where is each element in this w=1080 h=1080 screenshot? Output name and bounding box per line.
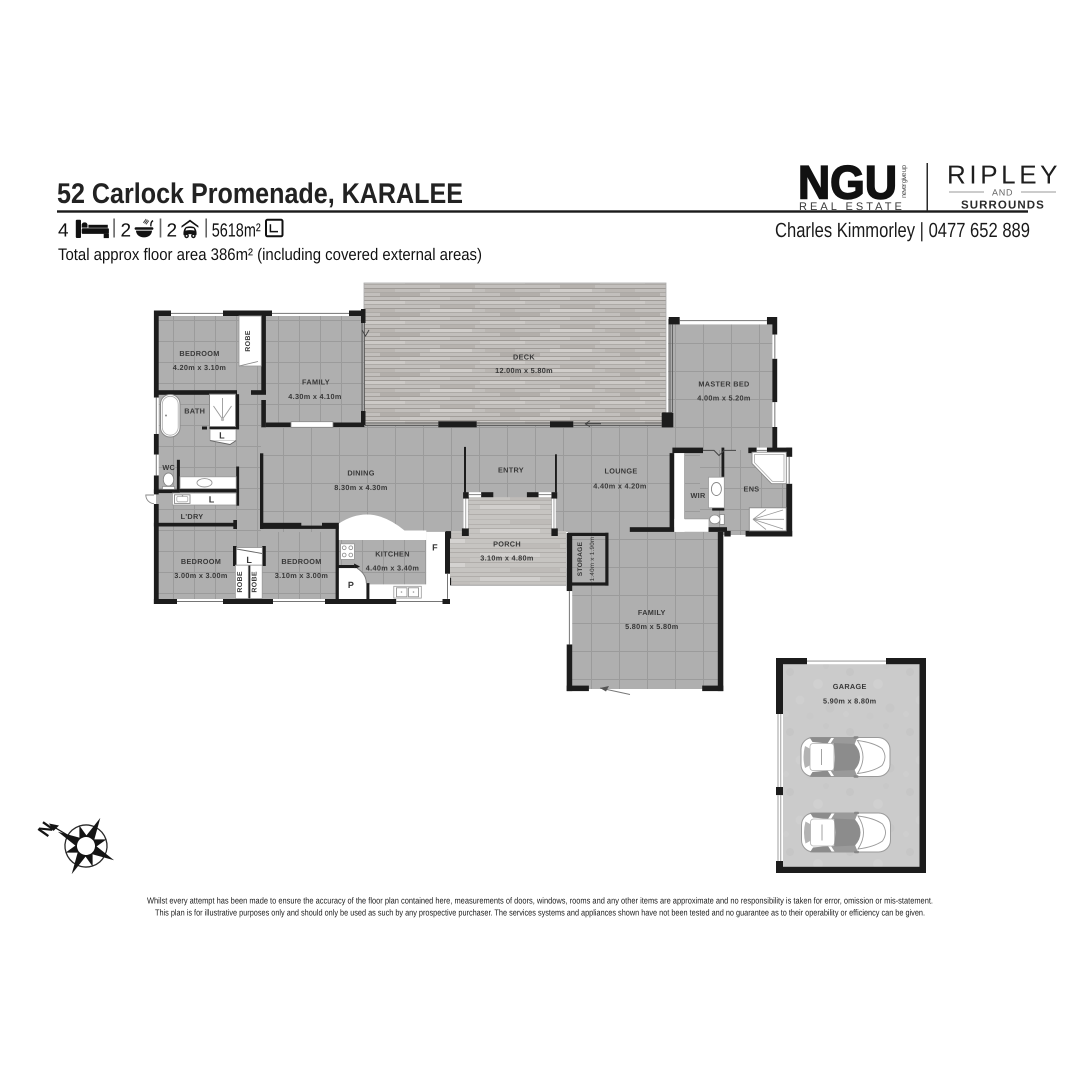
svg-text:L: L bbox=[209, 494, 215, 504]
svg-text:4.40m x 4.20m: 4.40m x 4.20m bbox=[593, 482, 647, 491]
svg-text:L: L bbox=[246, 555, 252, 565]
svg-text:never give up: never give up bbox=[900, 165, 908, 198]
svg-text:LOUNGE: LOUNGE bbox=[604, 467, 637, 476]
svg-text:ENS: ENS bbox=[744, 485, 760, 494]
svg-text:4.30m x 4.10m: 4.30m x 4.10m bbox=[288, 392, 342, 401]
svg-text:F: F bbox=[432, 543, 438, 553]
svg-text:Total approx floor area 386m²: Total approx floor area 386m² (including… bbox=[58, 245, 482, 264]
svg-text:4: 4 bbox=[58, 221, 69, 242]
svg-text:Charles Kimmorley | 0477 652 8: Charles Kimmorley | 0477 652 889 bbox=[775, 219, 1030, 242]
svg-text:This plan is for illustrative: This plan is for illustrative purposes o… bbox=[155, 908, 925, 918]
svg-text:ROBE: ROBE bbox=[237, 571, 244, 592]
svg-text:ROBE: ROBE bbox=[251, 571, 258, 592]
svg-text:8.30m x 4.30m: 8.30m x 4.30m bbox=[334, 483, 388, 492]
svg-text:3.10m x 3.00m: 3.10m x 3.00m bbox=[275, 571, 329, 580]
svg-text:5618m²: 5618m² bbox=[212, 221, 261, 242]
svg-text:P: P bbox=[348, 580, 354, 590]
svg-text:52 Carlock Promenade, KARALEE: 52 Carlock Promenade, KARALEE bbox=[57, 178, 463, 210]
svg-text:PORCH: PORCH bbox=[493, 540, 521, 549]
svg-text:3.10m x 4.80m: 3.10m x 4.80m bbox=[480, 554, 534, 563]
svg-text:1.40m x 1.90m: 1.40m x 1.90m bbox=[589, 537, 596, 582]
svg-text:GARAGE: GARAGE bbox=[833, 682, 867, 691]
svg-text:SURROUNDS: SURROUNDS bbox=[961, 200, 1046, 212]
svg-text:WIR: WIR bbox=[690, 491, 706, 500]
svg-text:4.40m x 3.40m: 4.40m x 3.40m bbox=[366, 564, 420, 573]
svg-text:Whilst every attempt has been: Whilst every attempt has been made to en… bbox=[147, 896, 933, 906]
svg-text:2: 2 bbox=[121, 221, 132, 242]
svg-text:ENTRY: ENTRY bbox=[498, 466, 524, 475]
svg-text:FAMILY: FAMILY bbox=[302, 378, 330, 387]
svg-text:BATH: BATH bbox=[184, 407, 205, 416]
svg-text:DECK: DECK bbox=[513, 353, 535, 362]
svg-text:WC: WC bbox=[162, 463, 175, 472]
svg-text:AND: AND bbox=[992, 188, 1015, 198]
svg-text:4.00m x 5.20m: 4.00m x 5.20m bbox=[697, 394, 751, 403]
svg-text:RIPLEY: RIPLEY bbox=[947, 160, 1064, 190]
svg-text:BEDROOM: BEDROOM bbox=[179, 349, 219, 358]
svg-text:12.00m x 5.80m: 12.00m x 5.80m bbox=[495, 366, 553, 375]
svg-text:STORAGE: STORAGE bbox=[577, 541, 584, 576]
svg-text:ROBE: ROBE bbox=[245, 330, 252, 351]
svg-text:KITCHEN: KITCHEN bbox=[375, 550, 410, 559]
svg-text:L: L bbox=[219, 431, 225, 441]
svg-text:L'DRY: L'DRY bbox=[181, 512, 204, 521]
svg-text:3.00m x 3.00m: 3.00m x 3.00m bbox=[174, 571, 228, 580]
svg-text:REAL ESTATE: REAL ESTATE bbox=[799, 201, 907, 213]
svg-text:BEDROOM: BEDROOM bbox=[281, 557, 321, 566]
svg-text:2: 2 bbox=[167, 221, 178, 242]
svg-text:5.90m x 8.80m: 5.90m x 8.80m bbox=[823, 697, 877, 706]
svg-text:MASTER BED: MASTER BED bbox=[698, 380, 749, 389]
svg-text:DINING: DINING bbox=[347, 469, 374, 478]
svg-text:5.80m x 5.80m: 5.80m x 5.80m bbox=[625, 622, 679, 631]
svg-text:FAMILY: FAMILY bbox=[638, 608, 666, 617]
svg-text:BEDROOM: BEDROOM bbox=[181, 557, 221, 566]
svg-text:4.20m x 3.10m: 4.20m x 3.10m bbox=[173, 363, 227, 372]
